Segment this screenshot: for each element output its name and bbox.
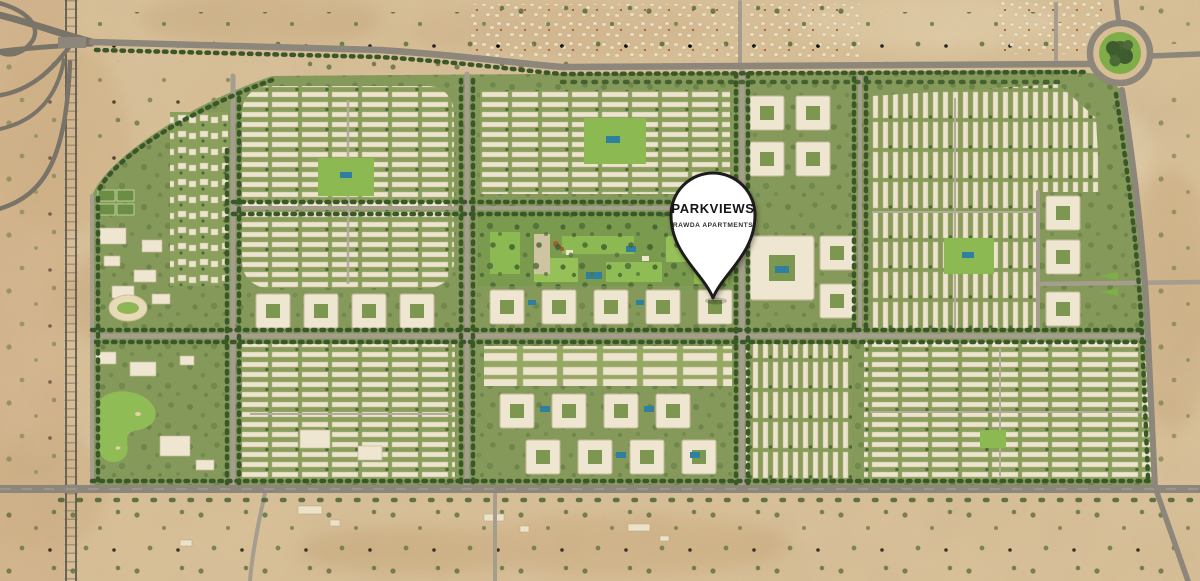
pin-title: PARKVIEWS: [671, 201, 754, 216]
townhouse-block-south-west: [242, 344, 455, 480]
townhouse-maze-southeast: [864, 342, 1153, 480]
masterplan-aerial-view: PARKVIEWS RAWDA APARTMENTS: [0, 0, 1200, 581]
desert-village: [470, 2, 1104, 58]
apartment-column-east: [1046, 196, 1080, 326]
pin-shadow: [705, 298, 727, 305]
pin-subtitle: RAWDA APARTMENTS: [673, 222, 753, 229]
townhouse-block-south-mid: [746, 344, 852, 480]
masterplan-map: PARKVIEWS RAWDA APARTMENTS: [0, 0, 1200, 581]
